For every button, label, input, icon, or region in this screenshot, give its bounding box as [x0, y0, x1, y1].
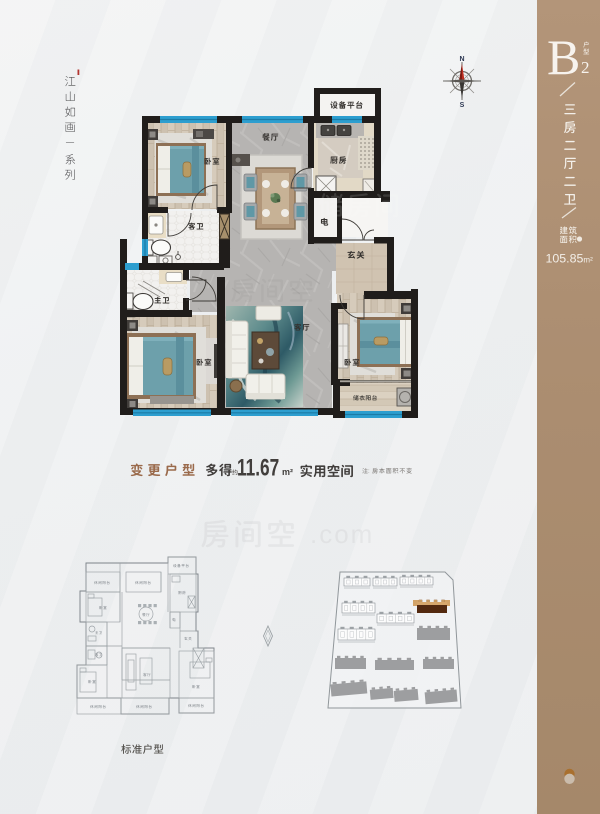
svg-text:S: S — [460, 102, 465, 109]
svg-text::: : — [368, 469, 370, 475]
svg-text:.com: .com — [310, 519, 374, 549]
svg-text:B: B — [547, 29, 580, 85]
svg-text:m²: m² — [282, 467, 293, 477]
svg-text:2: 2 — [581, 58, 590, 77]
svg-text:11.67: 11.67 — [237, 455, 279, 481]
svg-text:N: N — [459, 56, 464, 63]
